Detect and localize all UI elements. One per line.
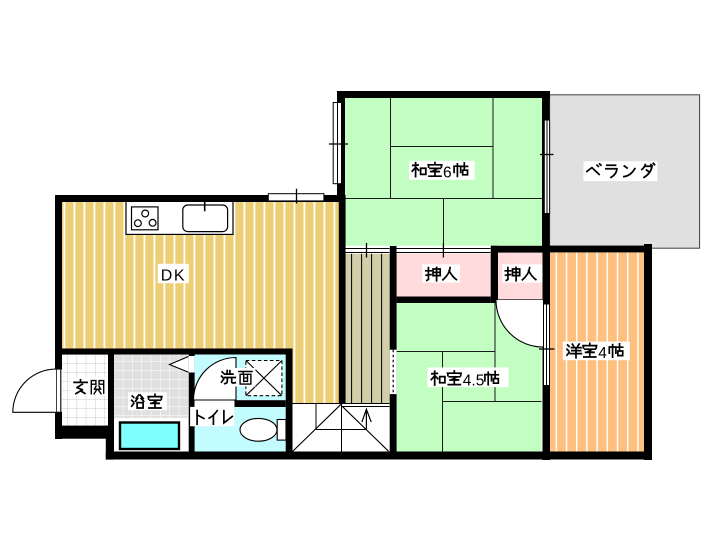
svg-text:4.5: 4.5 [463, 372, 485, 389]
svg-text:DK: DK [161, 268, 186, 285]
svg-text:4: 4 [598, 345, 607, 362]
svg-text:6: 6 [443, 164, 452, 181]
